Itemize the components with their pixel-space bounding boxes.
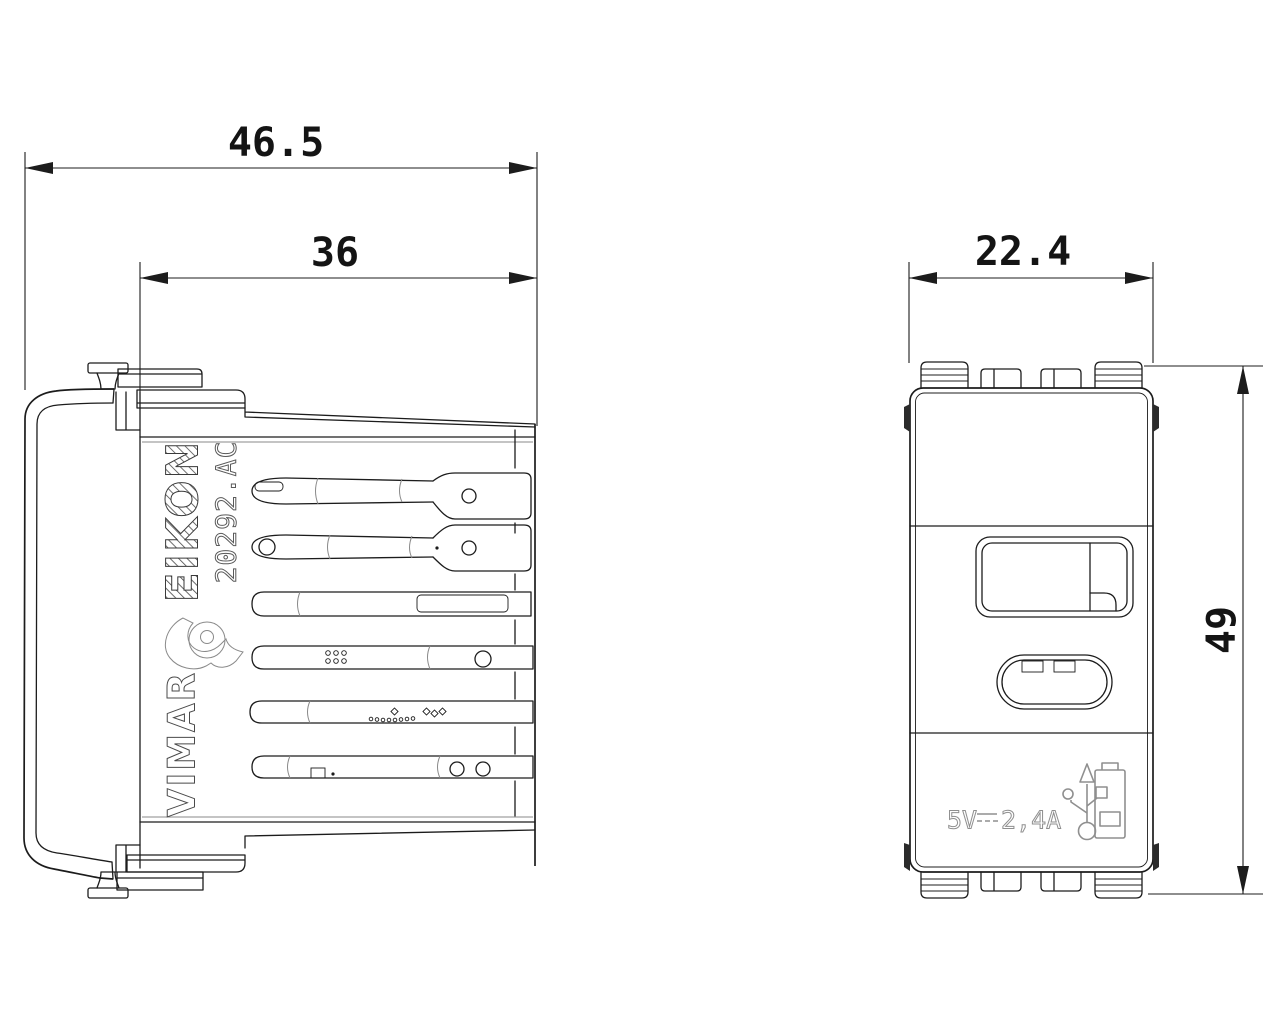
dimensional-drawing: EIKON 20292.AC VIMAR	[0, 0, 1280, 1024]
side-spring-top-left	[904, 404, 910, 432]
side-spring-bottom-left	[904, 843, 910, 871]
module-body-front	[904, 388, 1159, 872]
dim-front-height-value: 49	[1199, 606, 1245, 654]
side-spring-top-right	[1153, 404, 1159, 432]
dim-front-height: 49	[1144, 366, 1263, 894]
usb-charging-icon	[1063, 763, 1125, 840]
dim-module-depth-value: 36	[311, 230, 359, 276]
fixing-clips-top	[921, 362, 1142, 388]
cover-plate-profile	[24, 389, 114, 879]
side-view: EIKON 20292.AC VIMAR	[24, 363, 535, 898]
dc-symbol-icon	[977, 814, 998, 821]
vent-slot-4	[252, 646, 533, 669]
dim-overall-depth-value: 46.5	[228, 120, 324, 166]
product-code-text: 20292.AC	[210, 441, 243, 584]
vent-slot-5	[250, 701, 533, 723]
clip-channel	[116, 392, 140, 872]
vimar-logo-icon	[165, 618, 243, 669]
rating-voltage-text: 5V	[947, 806, 977, 835]
switch-recess	[976, 537, 1133, 617]
mounting-clip-bottom-icon	[88, 872, 128, 898]
mounting-clip-top-icon	[88, 363, 128, 389]
dim-front-width-value: 22.4	[975, 229, 1071, 275]
brand-text: EIKON	[158, 440, 209, 603]
dim-module-depth: 36	[140, 230, 537, 392]
front-view: 5V 2,4A	[904, 362, 1159, 898]
vent-slot-3	[252, 592, 531, 616]
dim-overall-depth: 46.5	[25, 120, 537, 426]
rating-marking: 5V 2,4A	[947, 806, 1061, 835]
dim-front-width: 22.4	[909, 229, 1153, 363]
usb-c-port	[997, 655, 1112, 709]
usb-trident-icon	[1063, 764, 1107, 840]
vent-slot-6	[252, 756, 533, 778]
fixing-clips-bottom	[921, 872, 1142, 898]
technical-drawing-canvas: EIKON 20292.AC VIMAR	[0, 0, 1280, 1024]
vent-slot-1	[252, 473, 531, 519]
vent-slot-2	[252, 525, 531, 571]
rating-current-text: 2,4A	[1001, 806, 1061, 835]
side-spring-bottom-right	[1153, 843, 1159, 871]
manufacturer-text: VIMAR	[161, 671, 204, 817]
battery-charging-icon	[1095, 763, 1125, 838]
